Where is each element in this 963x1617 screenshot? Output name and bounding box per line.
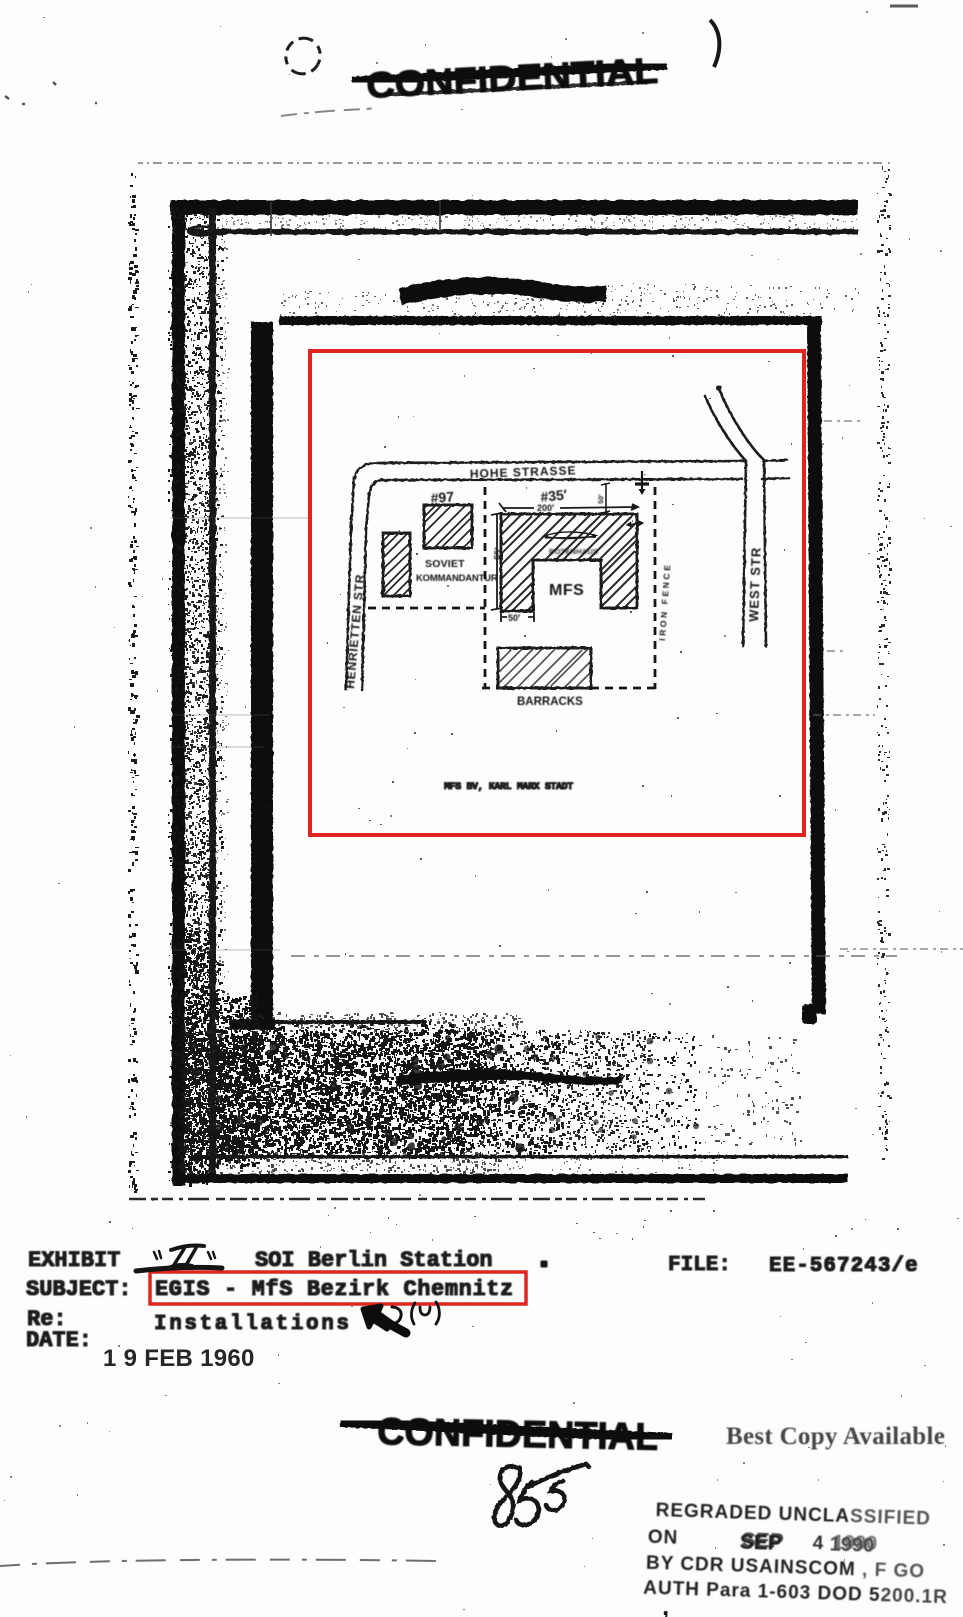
svg-text:IRON FENCE: IRON FENCE (657, 562, 672, 641)
svg-text:MFS: MFS (549, 582, 584, 599)
svg-text:1 9 FEB 1960: 1 9 FEB 1960 (103, 1345, 255, 1372)
svg-text:EXHIBIT: EXHIBIT (28, 1248, 120, 1273)
svg-text:4: 4 (812, 1533, 824, 1554)
svg-text:1990: 1990 (832, 1532, 877, 1555)
svg-text:Best Copy Available: Best Copy Available (726, 1423, 945, 1450)
svg-text:SUBJECT:: SUBJECT: (26, 1277, 132, 1302)
svg-text:BOTENHAUS: BOTENHAUS (549, 547, 598, 556)
svg-text:SEP: SEP (741, 1529, 784, 1553)
svg-text:SOVIET: SOVIET (425, 558, 465, 570)
svg-text:50′: 50′ (598, 494, 605, 504)
svg-text:BY CDR USAINSCOM , F GO: BY CDR USAINSCOM , F GO (646, 1553, 926, 1583)
svg-text:200′: 200′ (537, 503, 554, 513)
svg-text:WEST STR: WEST STR (746, 546, 764, 622)
svg-text:65′: 65′ (492, 547, 503, 560)
svg-text:REGRADED UNCLASSIFIED: REGRADED UNCLASSIFIED (655, 1500, 931, 1530)
svg-text:BARRACKS: BARRACKS (517, 696, 583, 708)
svg-text:#97: #97 (430, 488, 455, 506)
svg-text:50′: 50′ (508, 613, 520, 623)
svg-text:FILE:: FILE: (668, 1254, 731, 1277)
svg-text:EGIS - MfS Bezirk Chemnitz: EGIS - MfS Bezirk Chemnitz (155, 1277, 514, 1302)
svg-text:Installations: Installations (154, 1313, 352, 1336)
svg-text:EE-567243/e: EE-567243/e (769, 1255, 919, 1278)
svg-text:ON: ON (647, 1527, 678, 1549)
svg-text:AUTH Para 1-603 DOD 5200.1R: AUTH Para 1-603 DOD 5200.1R (643, 1578, 948, 1609)
svg-text:MFS BV, KARL MARX STADT: MFS BV, KARL MARX STADT (444, 782, 573, 793)
svg-text:DATE:: DATE: (26, 1328, 92, 1353)
svg-text:,: , (662, 1591, 669, 1617)
svg-text:KOMMANDANTUR: KOMMANDANTUR (416, 573, 498, 584)
svg-text:SOI Berlin Station: SOI Berlin Station (255, 1248, 493, 1273)
